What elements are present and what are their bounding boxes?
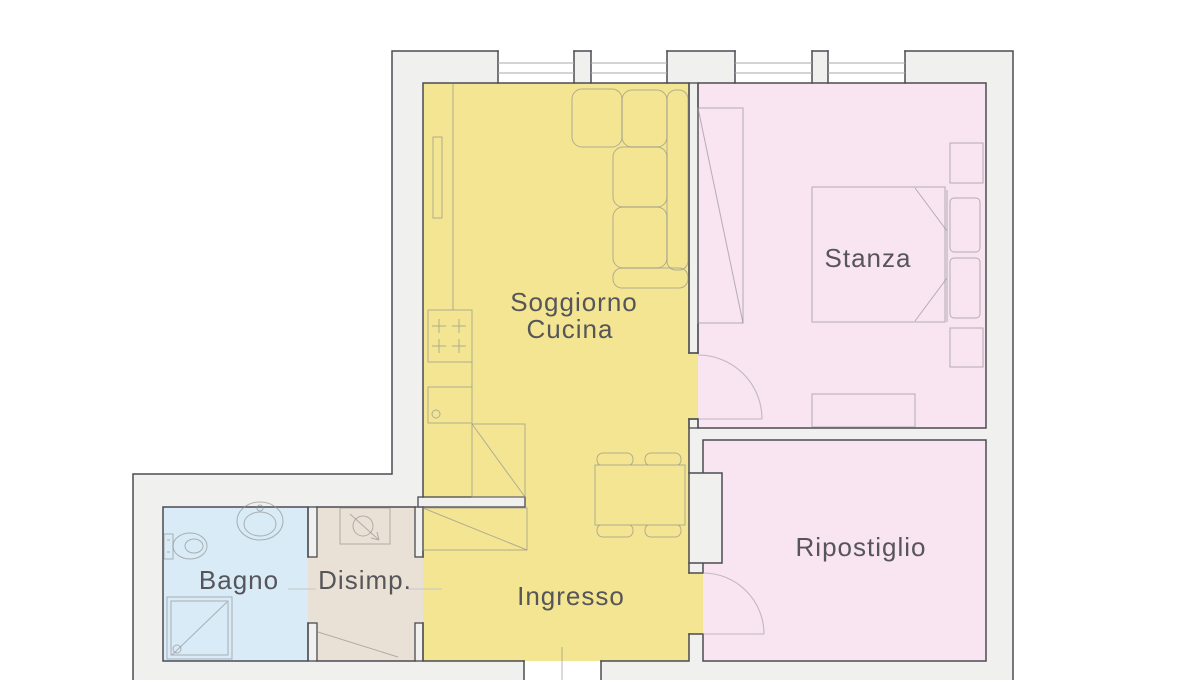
label-ripostiglio: Ripostiglio bbox=[796, 532, 927, 562]
dining-table bbox=[595, 465, 685, 525]
passage-bagno-fill bbox=[308, 557, 317, 623]
chair bbox=[645, 524, 681, 537]
wall-stub bbox=[689, 419, 698, 428]
chair bbox=[597, 453, 633, 466]
window bbox=[591, 50, 667, 83]
room-soggiorno-ingresso bbox=[423, 83, 689, 661]
dining-set bbox=[595, 453, 685, 537]
doorway-stanza-fill bbox=[689, 354, 698, 419]
wall-kitchen-stub bbox=[418, 497, 525, 507]
chair bbox=[597, 524, 633, 537]
wall-disimp-ingresso-top bbox=[415, 507, 423, 557]
label-stanza: Stanza bbox=[825, 243, 912, 273]
label-disimpegno: Disimp. bbox=[318, 565, 412, 595]
passage-ingresso-fill bbox=[415, 557, 423, 623]
wall-disimp-ingresso-bottom bbox=[415, 623, 423, 661]
wall-bagno-disimp-bottom bbox=[308, 623, 317, 661]
label-ingresso: Ingresso bbox=[517, 581, 625, 611]
wall-soggiorno-stanza bbox=[689, 83, 698, 353]
floor-plan-svg: Soggiorno Cucina Stanza Ripostiglio Bagn… bbox=[0, 0, 1200, 680]
floor-plan-canvas: Soggiorno Cucina Stanza Ripostiglio Bagn… bbox=[0, 0, 1200, 680]
label-cucina: Cucina bbox=[527, 314, 614, 344]
wall-bagno-disimp-top bbox=[308, 507, 317, 557]
window bbox=[498, 50, 574, 83]
doorway-ripostiglio-fill bbox=[689, 573, 703, 634]
chair bbox=[645, 453, 681, 466]
window bbox=[828, 50, 905, 83]
label-soggiorno: Soggiorno bbox=[510, 287, 638, 317]
window bbox=[735, 50, 812, 83]
label-bagno: Bagno bbox=[199, 565, 279, 595]
